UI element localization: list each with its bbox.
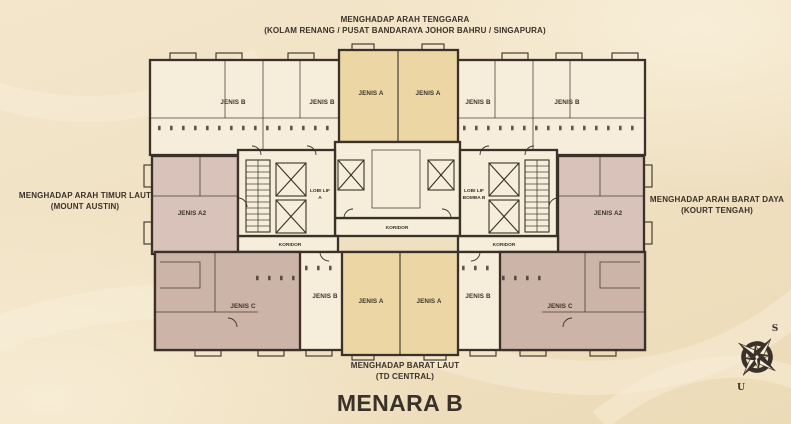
unit-label: JENIS A [359, 298, 384, 305]
lobby-label: BOMBA B [463, 195, 486, 201]
unit-label: JENIS B [465, 99, 491, 106]
unit-label: JENIS A2 [178, 210, 207, 217]
lobby-label: LOBI LIF [310, 188, 330, 194]
central-hall [335, 142, 460, 218]
caption-right-line2: (KOURT TENGAH) [681, 206, 753, 215]
unit-label: JENIS B [312, 293, 338, 300]
floor-plan: JENIS B JENIS B JENIS A JENIS A JENIS B … [144, 44, 652, 360]
compass-south-label: S [772, 324, 779, 334]
unit-label: JENIS B [465, 293, 491, 300]
unit-jenis-c-left [155, 252, 300, 356]
caption-left-line1: MENGHADAP ARAH TIMUR LAUT [19, 191, 151, 200]
unit-label: JENIS B [554, 99, 580, 106]
floor-plan-svg: JENIS B JENIS B JENIS A JENIS A JENIS B … [0, 0, 791, 424]
caption-top-line1: MENGHADAP ARAH TENGGARA [341, 15, 470, 24]
unit-label: JENIS A [417, 298, 442, 305]
lobby-label: LOBI LIF [464, 188, 484, 194]
corridor-label: KORIDOR [386, 225, 409, 231]
unit-jenis-a2-right [558, 156, 652, 254]
unit-label: JENIS A [359, 90, 384, 97]
unit-label: JENIS C [230, 303, 256, 310]
lobby-label: A [318, 195, 322, 201]
unit-label: JENIS B [309, 99, 335, 106]
floor-plan-page: JENIS B JENIS B JENIS A JENIS A JENIS B … [0, 0, 791, 424]
corridor-label: KORIDOR [493, 242, 516, 248]
caption-top-line2: (KOLAM RENANG / PUSAT BANDARAYA JOHOR BA… [264, 26, 546, 35]
compass-north-label: U [737, 383, 745, 393]
unit-label: JENIS A2 [594, 210, 623, 217]
unit-label: JENIS C [547, 303, 573, 310]
unit-label: JENIS A [416, 90, 441, 97]
caption-bottom-line2: (TD CENTRAL) [376, 372, 434, 381]
unit-jenis-a2-left [144, 156, 238, 254]
page-title: MENARA B [337, 390, 463, 416]
caption-bottom-line1: MENGHADAP BARAT LAUT [351, 361, 459, 370]
caption-left-line2: (MOUNT AUSTIN) [51, 202, 120, 211]
caption-right-line1: MENGHADAP ARAH BARAT DAYA [650, 195, 784, 204]
unit-label: JENIS B [220, 99, 246, 106]
corridor-label: KORIDOR [279, 242, 302, 248]
unit-jenis-a-bottom [342, 252, 458, 360]
